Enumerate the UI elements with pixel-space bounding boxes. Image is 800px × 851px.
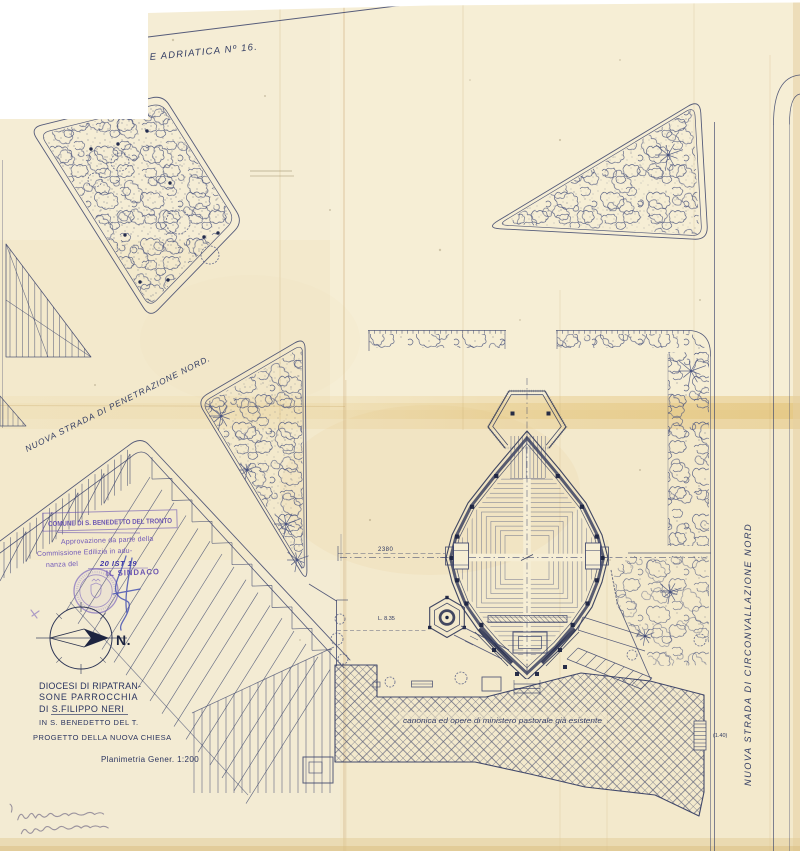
- svg-text:Planimetria Gener. 1:200: Planimetria Gener. 1:200: [101, 755, 199, 764]
- svg-text:DI S.FILIPPO NERI: DI S.FILIPPO NERI: [39, 704, 124, 714]
- svg-text:NUOVA STRADA DI CIRCONVALLA: NUOVA STRADA DI CIRCONVALLAZIONE NORD: [743, 523, 753, 786]
- svg-text:IL SINDACO: IL SINDACO: [106, 567, 160, 578]
- svg-text:N.: N.: [116, 632, 131, 648]
- svg-text:canonica ed opere di ministero: canonica ed opere di ministero pastorale…: [403, 716, 602, 725]
- svg-text:(1.40): (1.40): [713, 733, 728, 739]
- svg-text:SONE PARROCCHIA: SONE PARROCCHIA: [39, 692, 138, 702]
- svg-text:IN S. BENEDETTO DEL T.: IN S. BENEDETTO DEL T.: [39, 718, 139, 727]
- svg-text:L. 8.35: L. 8.35: [378, 616, 395, 622]
- svg-text:DIOCESI DI RIPATRAN-: DIOCESI DI RIPATRAN-: [39, 681, 141, 691]
- svg-text:nanza del: nanza del: [46, 561, 79, 569]
- svg-text:PROGETTO DELLA NUOVA CHIESA: PROGETTO DELLA NUOVA CHIESA: [33, 733, 172, 742]
- svg-text:2380: 2380: [378, 547, 394, 553]
